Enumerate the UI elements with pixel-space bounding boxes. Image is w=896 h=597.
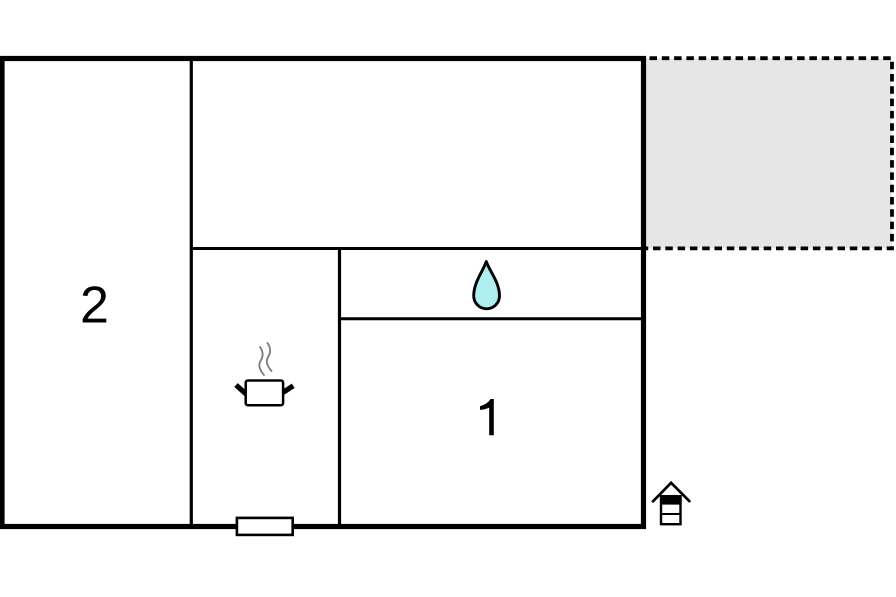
- svg-text:2: 2: [80, 277, 109, 335]
